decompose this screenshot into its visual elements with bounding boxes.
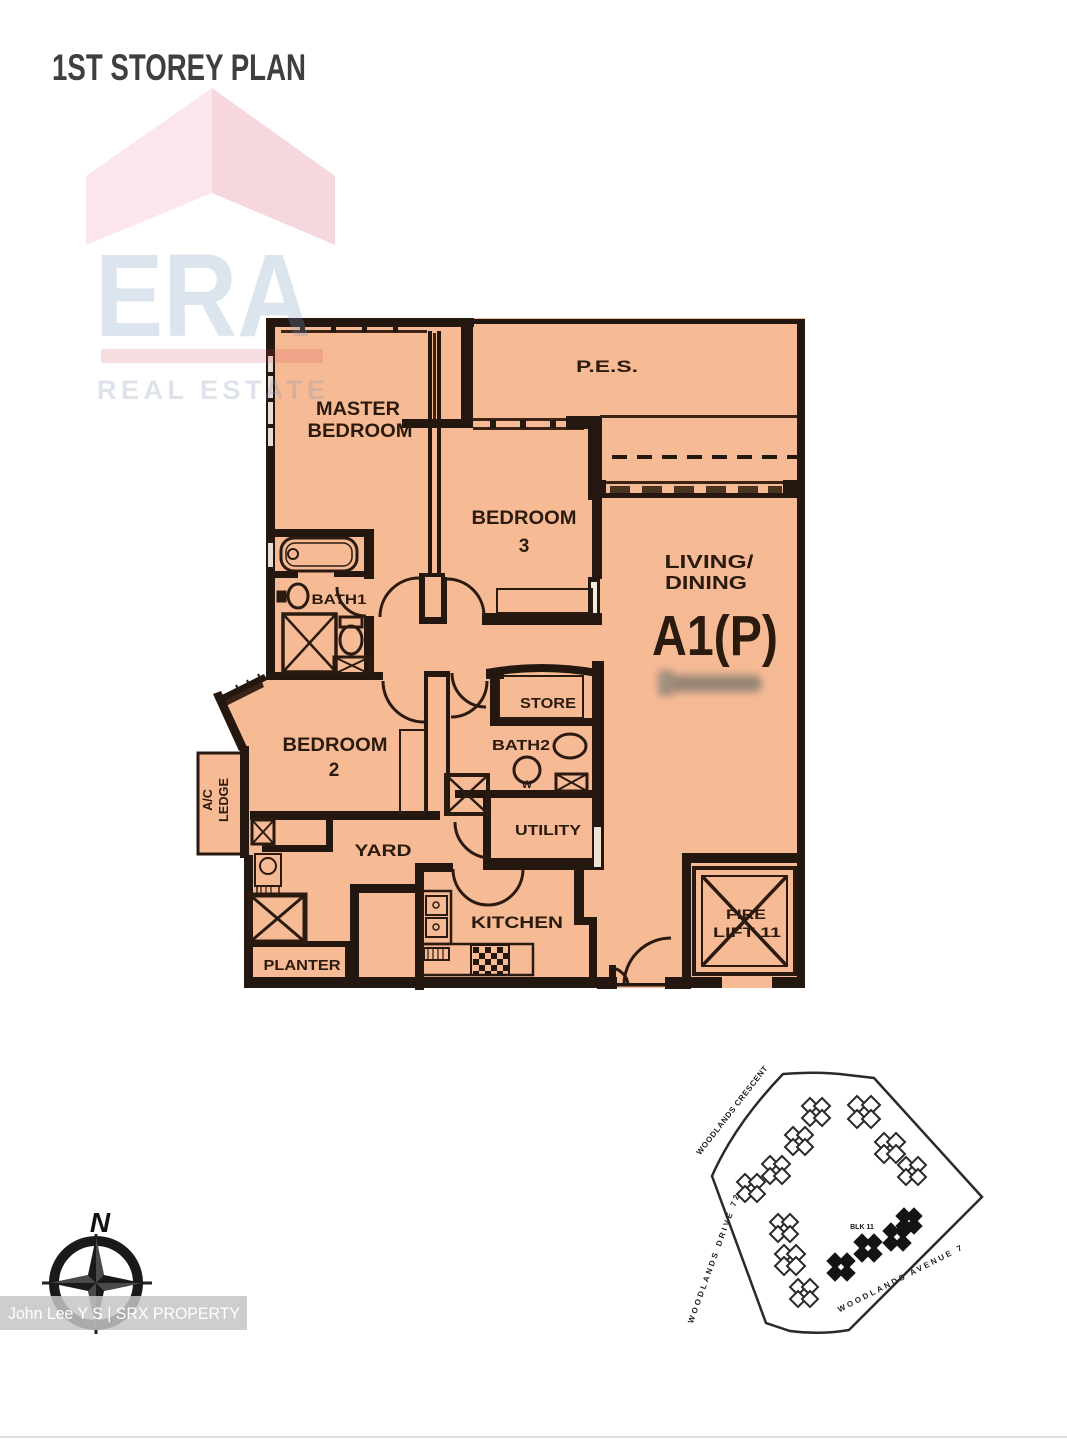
svg-text:LIFT 11: LIFT 11: [713, 925, 782, 940]
svg-text:A/C: A/C: [201, 789, 215, 811]
svg-text:UTILITY: UTILITY: [515, 823, 581, 839]
svg-text:KITCHEN: KITCHEN: [471, 913, 563, 932]
svg-text:REAL ESTATE: REAL ESTATE: [97, 375, 325, 405]
svg-text:LIVING/: LIVING/: [665, 552, 754, 572]
svg-text:1ST STOREY PLAN: 1ST STOREY PLAN: [52, 47, 306, 88]
svg-text:John Lee Y S | SRX PROPERTY: John Lee Y S | SRX PROPERTY: [8, 1305, 240, 1323]
svg-text:LEDGE: LEDGE: [217, 778, 231, 822]
svg-text:BATH2: BATH2: [492, 738, 550, 754]
svg-text:BLK 11: BLK 11: [850, 1224, 874, 1231]
svg-text:2: 2: [329, 760, 340, 781]
svg-text:FIRE: FIRE: [726, 907, 766, 922]
svg-text:DINING: DINING: [665, 573, 747, 593]
svg-text:ERA: ERA: [95, 230, 311, 362]
svg-text:BEDROOM: BEDROOM: [308, 421, 413, 442]
svg-text:W: W: [522, 779, 533, 791]
svg-text:BEDROOM: BEDROOM: [283, 735, 388, 756]
svg-text:P.E.S.: P.E.S.: [576, 357, 638, 376]
svg-text:YARD: YARD: [355, 841, 412, 860]
svg-text:BATH1: BATH1: [312, 591, 367, 607]
svg-text:N: N: [90, 1207, 111, 1238]
svg-text:MASTER: MASTER: [316, 399, 400, 420]
svg-text:BEDROOM: BEDROOM: [472, 508, 577, 529]
svg-text:STORE: STORE: [520, 696, 576, 712]
svg-text:PLANTER: PLANTER: [264, 957, 341, 974]
svg-text:3: 3: [519, 536, 530, 557]
svg-text:A1(P): A1(P): [652, 604, 778, 668]
